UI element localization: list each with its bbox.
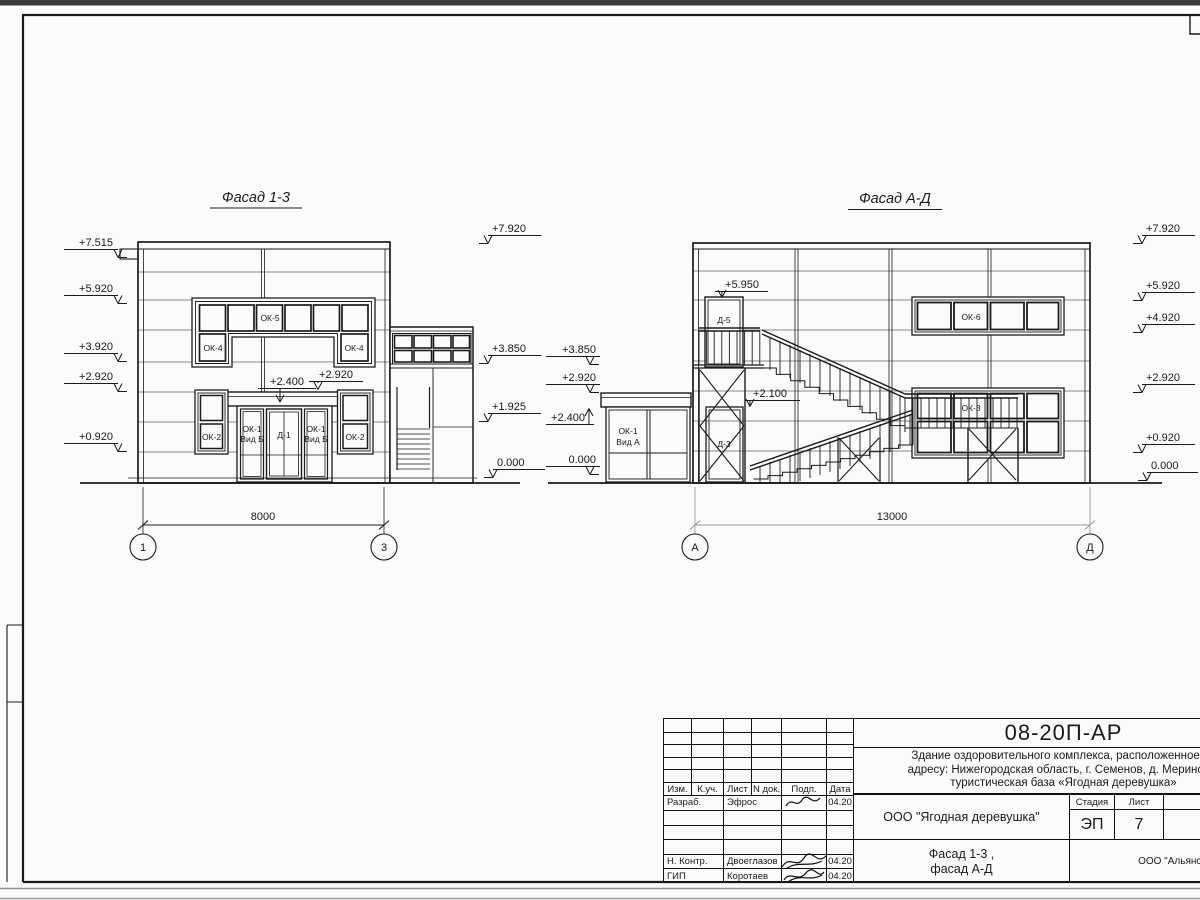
signature-efros — [782, 795, 826, 810]
facade-1-3-title: Фасад 1-3 — [222, 190, 290, 206]
facade-1-3-drawing: Фасад 1-3 ОК-5 ОК-4 ОК-4 — [64, 190, 545, 560]
header-podp: Подп. — [781, 782, 826, 795]
row-date-2 — [826, 825, 853, 840]
row-date-5: 04.20 — [826, 868, 853, 883]
subtitle-line-2: фасад А-Д — [930, 862, 992, 877]
window-label-ok2-left: ОК-2 — [202, 432, 221, 442]
elevation-mark-5950: +5.950 — [725, 279, 759, 291]
sheet-label: Лист — [1114, 794, 1163, 809]
window-label-ok3: ОК-3 — [961, 403, 980, 413]
row-name-1 — [723, 810, 781, 825]
left-filing-stamp — [7, 625, 23, 882]
row-role-4: Н. Контр. — [664, 854, 723, 868]
facade-a-d-title: Фасад А-Д — [859, 191, 931, 207]
project-description: Здание оздоровительного комплекса, распо… — [853, 747, 1200, 794]
elevation-mark: +2.400 — [551, 412, 585, 424]
org-name-cell: ООО "Ягодная деревушка" — [853, 794, 1069, 839]
header-data: Дата — [826, 782, 853, 795]
sheet-number: 7 — [1114, 809, 1163, 839]
row-role-0: Разраб. — [664, 795, 723, 810]
doc-number-cell: 08-20П-АР — [853, 719, 1200, 747]
window-label-ok5: ОК-5 — [260, 313, 279, 323]
door-label-d3: Д-3 — [717, 439, 731, 449]
sheets-label: Листов — [1163, 794, 1200, 809]
row-role-1 — [664, 810, 723, 825]
stair-annex — [390, 327, 473, 483]
elevation-mark: +5.920 — [1146, 280, 1180, 292]
doc-number: 08-20П-АР — [1005, 720, 1123, 746]
row-name-5: Коротаев — [723, 868, 781, 883]
elevation-mark: +2.920 — [1146, 372, 1180, 384]
window-label-ok2-right: ОК-2 — [345, 432, 364, 442]
header-list: Лист — [723, 782, 751, 795]
door-label-d1: Д-1 — [277, 430, 291, 440]
row-sign-2 — [781, 825, 826, 840]
elevation-mark-2400: +2.400 — [270, 376, 304, 388]
dimension-13000: 13000 — [877, 511, 908, 523]
facade-1-3-dimension: 8000 1 3 — [130, 487, 397, 560]
elevation-mark: +2.920 — [562, 372, 596, 384]
vestibule: ОК-1 Вид А — [601, 393, 691, 482]
elevation-mark: +2.920 — [79, 371, 113, 383]
axis-label-1: 1 — [140, 542, 146, 554]
window-label-ok1a-1: ОК-1 — [618, 426, 637, 436]
window-label-ok4-left: ОК-4 — [203, 343, 222, 353]
company-name: ООО "Альянс" — [1069, 839, 1200, 883]
facade-1-3-left-marks: +7.515 +5.920 +3.920 +2.920 +0.920 — [64, 237, 127, 452]
window-label-ok1a-2: Вид А — [616, 437, 640, 447]
elevation-mark: +7.920 — [1146, 223, 1180, 235]
facade-a-d-dimension: 13000 А Д — [682, 487, 1103, 560]
elevation-mark: +3.850 — [562, 344, 596, 356]
window-label-ok1b-right-2: Вид Б — [304, 434, 328, 444]
dimension-8000: 8000 — [251, 511, 275, 523]
facade-a-d-right-marks: +7.920 +5.920 +4.920 +2.920 +0.920 0.000 — [1133, 223, 1198, 481]
description-line-2: адресу: Нижегородская область, г. Семено… — [908, 764, 1200, 778]
elevation-mark: +4.920 — [1146, 312, 1180, 324]
elevation-mark: 0.000 — [497, 457, 525, 469]
row-name-4: Двоеглазов — [723, 854, 781, 868]
window-label-ok1b-left-2: Вид Б — [240, 434, 264, 444]
facade-1-3-right-marks: +7.920 +3.850 +1.925 0.000 — [479, 223, 545, 478]
axis-label-d: Д — [1086, 542, 1094, 554]
row-date-3 — [826, 839, 853, 854]
window-label-ok6: ОК-6 — [961, 312, 980, 322]
elevation-mark: +7.515 — [79, 237, 113, 249]
window-label-ok4-right: ОК-4 — [344, 343, 363, 353]
window-label-ok1b-right-1: ОК-1 — [306, 424, 325, 434]
window-ok2-right: ОК-2 — [338, 390, 374, 454]
drawing-subtitle: Фасад 1-3 , фасад А-Д — [853, 839, 1069, 883]
elevation-mark: +5.920 — [79, 283, 113, 295]
elevation-mark: +0.920 — [1146, 432, 1180, 444]
row-date-4: 04.20 — [826, 854, 853, 868]
elevation-mark: +3.920 — [79, 341, 113, 353]
door-label-d5: Д-5 — [717, 315, 731, 325]
entrance-group: ОК-1 Вид Б Д-1 ОК-1 Вид Б — [224, 392, 339, 482]
facade-a-d-drawing: Фасад А-Д ОК-6 — [546, 191, 1198, 560]
elevation-mark: 0.000 — [1151, 460, 1179, 472]
title-block: Изм. К.уч. Лист N док. Подп. Дата Разраб… — [663, 718, 1200, 882]
window-ok2-left: ОК-2 — [195, 390, 228, 454]
axis-label-3: 3 — [381, 542, 387, 554]
stage-value: ЭП — [1069, 809, 1114, 839]
header-izm: Изм. — [664, 782, 691, 795]
subtitle-line-1: Фасад 1-3 , — [929, 847, 994, 862]
header-ndok: N док. — [751, 782, 781, 795]
elevation-mark: +3.850 — [492, 343, 526, 355]
drawing-sheet: { "sheet": { "top_bar_color": "#3c3c3c",… — [0, 0, 1200, 900]
description-line-1: Здание оздоровительного комплекса, распо… — [911, 750, 1200, 764]
elevation-mark-2100: +2.100 — [753, 388, 787, 400]
elevation-mark: 0.000 — [568, 454, 596, 466]
row-role-5: ГИП — [664, 868, 723, 883]
elevation-mark: +7.920 — [492, 223, 526, 235]
row-name-3 — [723, 839, 781, 854]
row-role-2 — [664, 825, 723, 840]
axis-label-a: А — [691, 542, 699, 554]
window-label-ok1b-left-1: ОК-1 — [242, 424, 261, 434]
window-ok6: ОК-6 — [912, 297, 1064, 335]
signature-korotaev — [778, 867, 830, 885]
corner-stamp-box — [1190, 15, 1200, 34]
elevation-mark: +1.925 — [492, 401, 526, 413]
elevation-mark-2920-canopy: +2.920 — [319, 369, 353, 381]
elevation-mark: +0.920 — [79, 431, 113, 443]
facade-a-d-left-marks: +3.850 +2.920 +2.400 0.000 — [546, 344, 600, 475]
row-role-3 — [664, 839, 723, 854]
row-date-1 — [826, 810, 853, 825]
row-name-2 — [723, 825, 781, 840]
row-date-0: 04.20 — [826, 795, 853, 810]
row-sign-1 — [781, 810, 826, 825]
top-screen-bar — [0, 0, 1200, 6]
stage-label: Стадия — [1069, 794, 1114, 809]
sheets-total — [1163, 809, 1200, 839]
header-kuch: К.уч. — [691, 782, 723, 795]
description-line-3: туристическая база «Ягодная деревушка» — [950, 777, 1176, 791]
row-name-0: Эфрос — [723, 795, 781, 810]
